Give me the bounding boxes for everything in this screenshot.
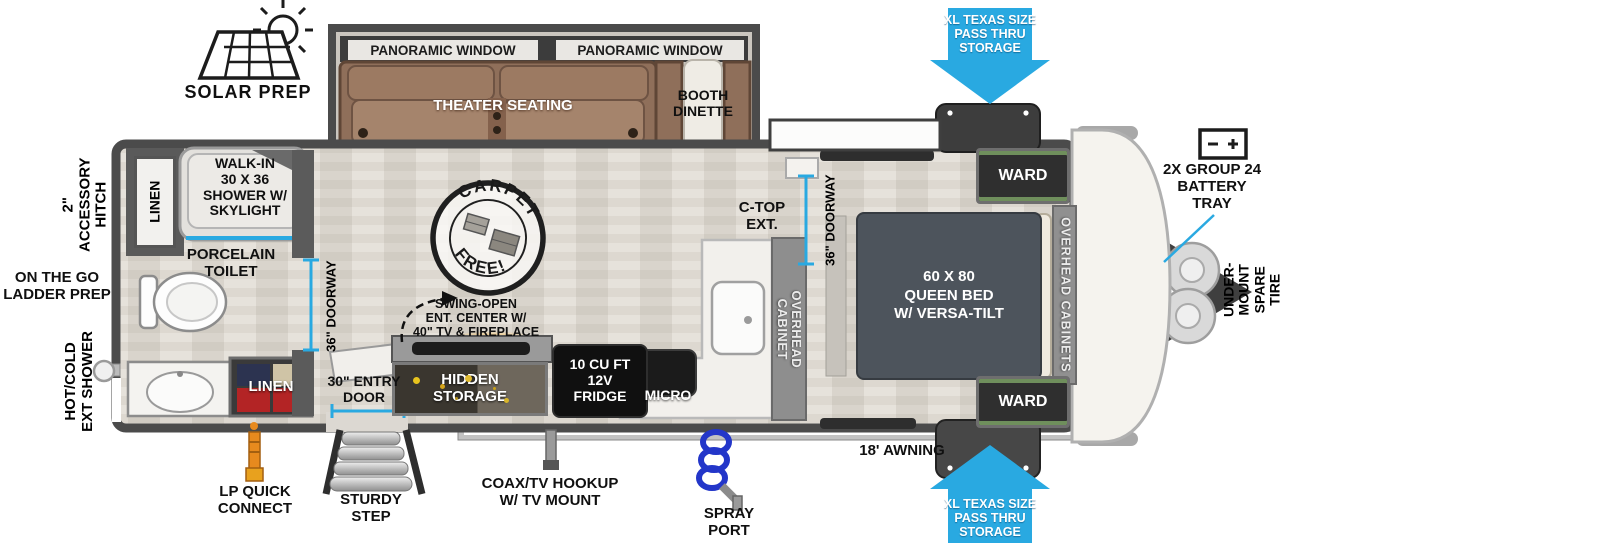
spray-port-label: SPRAY PORT: [684, 506, 774, 540]
solar-prep-icon: [200, 0, 313, 78]
ward-bottom-label: WARD: [999, 393, 1048, 411]
storage-contents: [413, 377, 420, 384]
lp-quick-connect-label: LP QUICK CONNECT: [198, 484, 312, 518]
sturdy-step-icon: [326, 430, 422, 494]
overhead-cabinet-label: OVERHEAD CABINET: [770, 238, 808, 420]
linen-top-label: LINEN: [147, 181, 162, 223]
entry-door-label: 30" ENTRY DOOR: [316, 374, 412, 406]
bath-doorway-label: 36" DOORWAY: [314, 258, 350, 354]
panoramic-window-left-label: PANORAMIC WINDOW: [348, 43, 538, 58]
sturdy-step-label: STURDY STEP: [324, 492, 418, 526]
linen-bottom-label: LINEN: [230, 379, 312, 396]
hidden-storage-label: HIDDEN STORAGE: [433, 372, 507, 406]
queen-bed: 60 X 80 QUEEN BED W/ VERSA-TILT: [856, 212, 1042, 380]
battery-tray-label: 2X GROUP 24 BATTERY TRAY: [1150, 162, 1274, 213]
bed-doorway-label: 36" DOORWAY: [812, 168, 850, 272]
pass-thru-bottom-label: XL TEXAS SIZE PASS THRU STORAGE: [933, 497, 1047, 539]
booth-dinette-label: BOOTH DINETTE: [650, 88, 756, 120]
ctop-ext-label: C-TOP EXT.: [720, 200, 804, 234]
theater-seating-label: THEATER SEATING: [358, 98, 648, 115]
ladder-prep-label: ON THE GO LADDER PREP: [0, 270, 114, 304]
solar-prep-label: SOLAR PREP: [178, 82, 318, 102]
fridge-label: 10 CU FT 12V FRIDGE: [570, 357, 631, 404]
panoramic-window-right-label: PANORAMIC WINDOW: [556, 43, 744, 58]
spray-hose-icon: [699, 432, 742, 510]
ext-shower-label: HOT/COLD EXT SHOWER: [26, 322, 132, 440]
micro-label: MICRO: [632, 388, 704, 404]
awning-label: 18' AWNING: [842, 443, 962, 460]
ward-top-label: WARD: [999, 167, 1048, 185]
coax-label: COAX/TV HOOKUP W/ TV MOUNT: [468, 476, 632, 510]
fridge: 10 CU FT 12V FRIDGE: [552, 344, 648, 418]
swing-open-label: SWING-OPEN ENT. CENTER W/ 40" TV & FIREP…: [406, 297, 546, 339]
toilet-label: PORCELAIN TOILET: [148, 247, 314, 281]
rv-floorplan: CARPET FREE! SOLAR PREP XL TEXAS SIZE PA…: [0, 0, 1600, 549]
spare-tire-label: UNDER-MOUNT SPARE TIRE: [1228, 222, 1276, 358]
coax-connector-icon: [543, 430, 559, 470]
pass-thru-top-label: XL TEXAS SIZE PASS THRU STORAGE: [933, 13, 1047, 55]
hidden-storage-cabinet: HIDDEN STORAGE: [392, 362, 548, 416]
overhead-cabinets-label: OVERHEAD CABINETS: [1046, 200, 1084, 390]
queen-bed-label: 60 X 80 QUEEN BED W/ VERSA-TILT: [894, 268, 1004, 324]
wardrobe-top: WARD: [976, 148, 1070, 204]
shower-label: WALK-IN 30 X 36 SHOWER W/ SKYLIGHT: [182, 156, 308, 219]
linen-cabinet-top: LINEN: [134, 156, 176, 248]
accessory-hitch-label: 2" ACCESSORY HITCH: [30, 140, 140, 270]
